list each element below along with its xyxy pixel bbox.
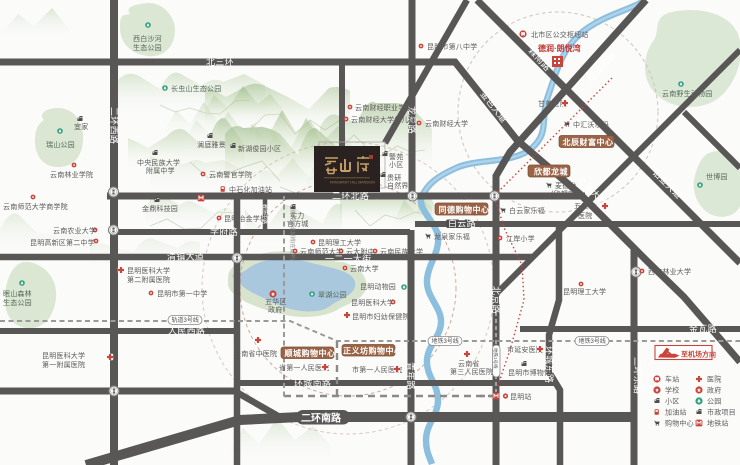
svg-text:江岸小学: 江岸小学 <box>506 234 535 243</box>
svg-text:龙泉家乐福: 龙泉家乐福 <box>434 232 470 241</box>
svg-text:青年路: 青年路 <box>406 362 417 390</box>
svg-text:中央民族大学: 中央民族大学 <box>137 158 180 167</box>
svg-text:昆明站: 昆明站 <box>510 392 532 401</box>
svg-text:昆明理工大学: 昆明理工大学 <box>563 287 606 296</box>
svg-text:顺城购物中心: 顺城购物中心 <box>285 348 336 358</box>
svg-text:(欣都店): (欣都店) <box>551 189 578 198</box>
svg-text:麦德龙: 麦德龙 <box>555 181 577 190</box>
svg-text:瑞山公园: 瑞山公园 <box>46 140 75 149</box>
svg-text:教场中路: 教场中路 <box>261 204 268 224</box>
svg-text:二环东路: 二环东路 <box>633 357 644 394</box>
svg-text:FRAGRANT HILL MANSION: FRAGRANT HILL MANSION <box>330 181 375 185</box>
svg-text:眠山森林: 眠山森林 <box>3 289 32 298</box>
svg-text:宜家: 宜家 <box>74 122 88 131</box>
svg-text:人民西路: 人民西路 <box>168 325 205 336</box>
svg-text:同德购物中心: 同德购物中心 <box>439 205 490 215</box>
svg-text:中石化加油站: 中石化加油站 <box>229 185 272 194</box>
svg-text:医院: 医院 <box>578 211 592 220</box>
svg-text:车站: 车站 <box>665 375 679 384</box>
svg-text:云大附中: 云大附中 <box>346 247 375 256</box>
svg-text:清镇大道: 清镇大道 <box>167 251 204 262</box>
svg-text:环城东路: 环城东路 <box>544 346 555 383</box>
svg-text:第二附属医院: 第二附属医院 <box>127 275 170 284</box>
svg-text:地铁站: 地铁站 <box>707 419 729 428</box>
svg-text:昆明医科大学: 昆明医科大学 <box>127 266 170 275</box>
svg-text:西白沙河: 西白沙河 <box>133 34 162 43</box>
svg-text:云南警官学院: 云南警官学院 <box>209 170 252 179</box>
svg-text:世博园: 世博园 <box>706 172 728 181</box>
svg-text:金瓦路: 金瓦路 <box>689 323 717 334</box>
svg-text:二环南路: 二环南路 <box>301 412 342 425</box>
svg-text:昆明市博物馆: 昆明市博物馆 <box>508 368 551 377</box>
svg-text:购物中心: 购物中心 <box>665 419 694 428</box>
svg-text:昆明市妇幼保健院: 昆明市妇幼保健院 <box>352 312 410 321</box>
svg-text:附属中学: 附属中学 <box>146 166 175 175</box>
svg-text:昆明高新区第二中学: 昆明高新区第二中学 <box>30 238 95 247</box>
svg-text:中汇沃尔玛: 中汇沃尔玛 <box>573 120 609 129</box>
svg-text:云南大学: 云南大学 <box>350 264 379 273</box>
svg-text:小区: 小区 <box>389 160 403 169</box>
svg-text:昆明医科大学: 昆明医科大学 <box>42 351 85 360</box>
svg-text:云南师范大学: 云南师范大学 <box>300 247 343 256</box>
svg-text:云南财经大学: 云南财经大学 <box>425 119 468 128</box>
svg-text:警苑: 警苑 <box>389 152 403 161</box>
svg-text:至机场方向: 至机场方向 <box>681 350 716 359</box>
svg-text:五三三: 五三三 <box>574 202 596 210</box>
svg-text:白云家乐福: 白云家乐福 <box>509 206 545 215</box>
svg-text:生态公园: 生态公园 <box>133 43 162 52</box>
svg-text:云南财经大学幼儿园: 云南财经大学幼儿园 <box>351 115 416 124</box>
svg-text:轨道3号线: 轨道3号线 <box>172 316 199 324</box>
svg-text:北辰财富中心: 北辰财富中心 <box>563 137 614 147</box>
svg-text:白云路: 白云路 <box>448 218 476 229</box>
svg-text:云南农业大学: 云南农业大学 <box>53 226 96 235</box>
svg-text:云南省中医院: 云南省中医院 <box>234 349 277 358</box>
svg-text:第一附属医院: 第一附属医院 <box>42 360 85 369</box>
svg-text:政府: 政府 <box>268 305 282 314</box>
svg-text:医院: 医院 <box>707 375 721 384</box>
svg-text:金鼎科技园: 金鼎科技园 <box>142 204 178 213</box>
svg-text:云南师范大学商学院: 云南师范大学商学院 <box>3 202 68 211</box>
svg-text:云南财经职业学院: 云南财经职业学院 <box>355 103 413 112</box>
svg-text:澜庭雅景: 澜庭雅景 <box>197 140 226 149</box>
svg-text:云南野生动物园: 云南野生动物园 <box>662 89 712 98</box>
svg-text:地铁1号线: 地铁1号线 <box>492 348 499 369</box>
svg-text:云南省: 云南省 <box>458 359 480 368</box>
svg-text:正义坊购物中心: 正义坊购物中心 <box>343 346 403 356</box>
svg-text:西南林业大学: 西南林业大学 <box>648 267 691 276</box>
svg-text:政府: 政府 <box>707 386 721 395</box>
svg-text:北京路: 北京路 <box>491 286 502 314</box>
svg-text:翠湖公园: 翠湖公园 <box>318 290 347 299</box>
svg-text:加油站: 加油站 <box>665 408 687 417</box>
svg-text:贵研: 贵研 <box>387 173 401 182</box>
svg-text:第三人民医院: 第三人民医院 <box>450 367 493 376</box>
svg-text:昆明动物园: 昆明动物园 <box>360 282 396 291</box>
svg-text:环城南路: 环城南路 <box>294 378 331 389</box>
svg-text:实力: 实力 <box>290 211 304 220</box>
svg-text:昆明理工大学: 昆明理工大学 <box>318 238 361 247</box>
svg-text:昆明医科大学: 昆明医科大学 <box>351 298 394 307</box>
svg-text:云南林业学院: 云南林业学院 <box>50 170 93 179</box>
svg-text:学府路: 学府路 <box>210 226 238 237</box>
svg-text:昆明市第一中学: 昆明市第一中学 <box>157 289 207 298</box>
svg-text:德润·朗悦湾: 德润·朗悦湾 <box>538 43 581 53</box>
svg-text:长虫山生态公园: 长虫山生态公园 <box>171 84 221 93</box>
svg-text:地铁3号线: 地铁3号线 <box>579 337 606 345</box>
svg-text:昆明市第八中学: 昆明市第八中学 <box>427 42 477 51</box>
svg-text:公园: 公园 <box>707 398 721 406</box>
svg-text:生态公园: 生态公园 <box>3 298 32 307</box>
svg-text:新湖俊园小区: 新湖俊园小区 <box>238 144 281 153</box>
svg-text:小区: 小区 <box>665 397 679 406</box>
svg-text:二环西路: 二环西路 <box>109 107 120 144</box>
svg-text:欣都龙城: 欣都龙城 <box>534 167 568 177</box>
svg-text:自然界: 自然界 <box>387 181 409 190</box>
svg-text:云南民族大学: 云南民族大学 <box>380 247 423 256</box>
svg-text:五华区: 五华区 <box>265 297 287 306</box>
svg-text:市政项目: 市政项目 <box>707 408 736 417</box>
svg-text:北市区公交枢纽站: 北市区公交枢纽站 <box>531 30 589 39</box>
svg-text:地铁3号线: 地铁3号线 <box>432 337 459 345</box>
svg-text:官方城: 官方城 <box>287 219 309 228</box>
svg-text:学校: 学校 <box>665 386 679 395</box>
svg-text:北三环: 北三环 <box>206 57 234 67</box>
svg-text:昆明冶金学校: 昆明冶金学校 <box>224 214 267 223</box>
